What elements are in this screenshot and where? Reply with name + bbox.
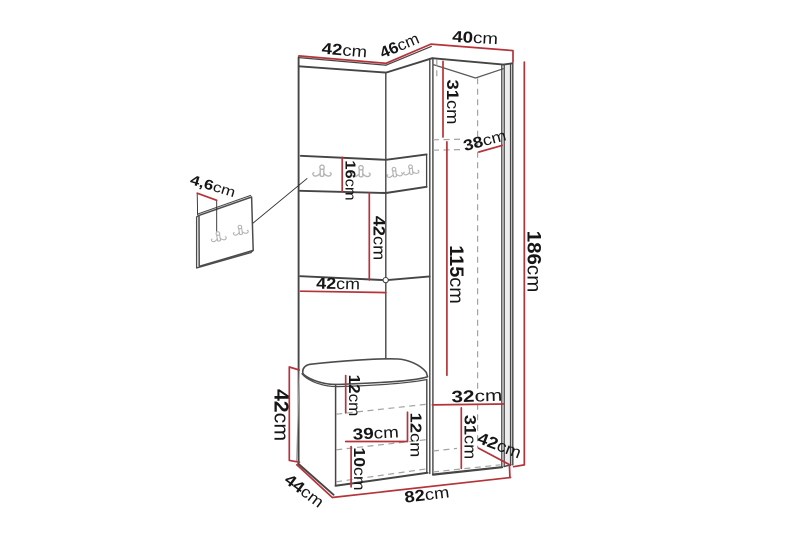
svg-text:10cm: 10cm (350, 447, 368, 490)
svg-text:31cm: 31cm (443, 80, 462, 125)
svg-text:186cm: 186cm (523, 231, 544, 293)
svg-text:115cm: 115cm (445, 245, 467, 304)
svg-text:12cm: 12cm (345, 375, 362, 417)
svg-text:39cm: 39cm (352, 423, 399, 444)
svg-text:42cm: 42cm (270, 389, 293, 441)
svg-text:31cm: 31cm (461, 415, 480, 459)
svg-text:40cm: 40cm (452, 27, 499, 48)
svg-text:42cm: 42cm (321, 39, 368, 61)
svg-text:16cm: 16cm (342, 160, 358, 200)
svg-text:12cm: 12cm (407, 413, 424, 458)
svg-text:32cm: 32cm (451, 386, 502, 406)
svg-text:42cm: 42cm (316, 274, 360, 293)
svg-text:42cm: 42cm (370, 216, 389, 260)
